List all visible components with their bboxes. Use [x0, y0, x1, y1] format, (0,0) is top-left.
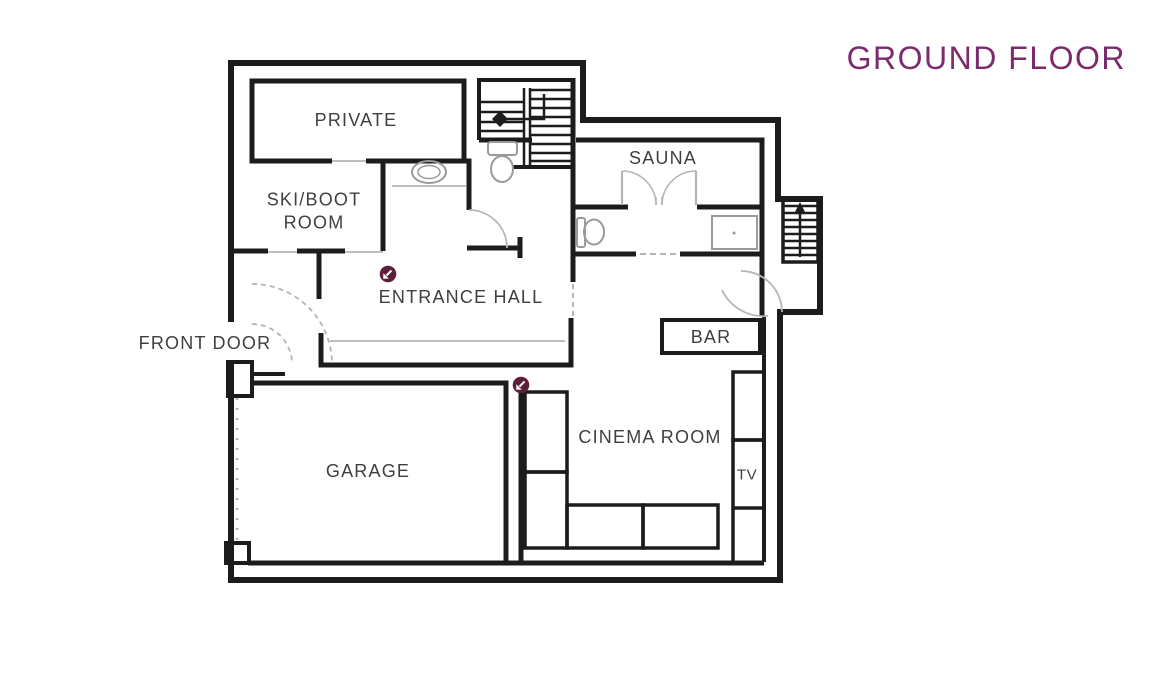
shower-icon	[577, 218, 604, 247]
room-label-sauna: SAUNA	[629, 147, 697, 170]
room-label-ski-boot-room: SKI/BOOT ROOM	[244, 189, 384, 234]
room-label-front-door: FRONT DOOR	[139, 332, 272, 355]
floorplan-page: GROUND FLOOR PRIVATE SKI/BOOT ROOM ENTRA…	[0, 0, 1170, 695]
room-label-tv: TV	[737, 467, 757, 486]
toilet-icon	[488, 142, 517, 182]
room-label-bar: BAR	[691, 326, 732, 349]
cinema-sofas	[525, 372, 764, 562]
view-hotspot-icon[interactable]	[379, 265, 397, 283]
internal-stairs	[479, 80, 573, 167]
sink-icon	[392, 161, 466, 186]
room-label-entrance-hall: ENTRANCE HALL	[379, 286, 544, 309]
shower-tray-icon	[712, 216, 757, 249]
external-stairs	[783, 199, 818, 262]
room-label-cinema-room: CINEMA ROOM	[578, 426, 721, 449]
room-label-garage: GARAGE	[326, 460, 410, 483]
page-title: GROUND FLOOR	[847, 40, 1126, 77]
view-hotspot-icon[interactable]	[512, 376, 530, 394]
sauna-double-doors	[622, 171, 696, 205]
room-label-private: PRIVATE	[315, 109, 398, 132]
